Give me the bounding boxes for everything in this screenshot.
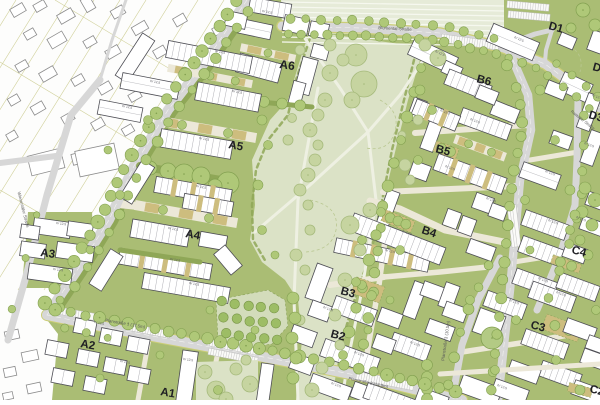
svg-text:A2: A2 bbox=[79, 338, 96, 352]
svg-text:A3: A3 bbox=[40, 247, 56, 261]
svg-text:A6: A6 bbox=[279, 57, 296, 73]
svg-text:A1: A1 bbox=[159, 386, 176, 400]
